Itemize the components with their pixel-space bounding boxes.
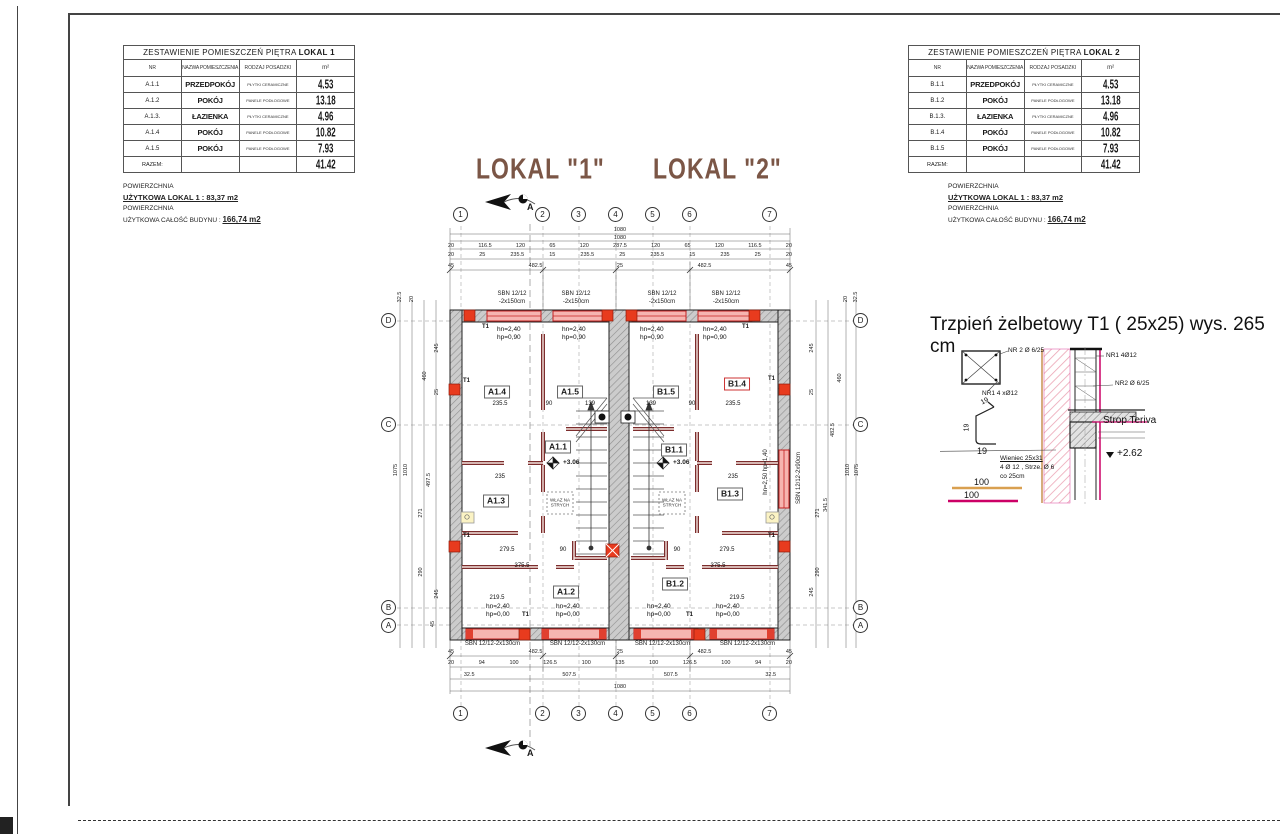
grid-bubble-row-D-left: D — [381, 313, 396, 328]
grid-bubble-col-3-bottom: 3 — [571, 706, 586, 721]
section-marker-top — [483, 190, 543, 218]
window-label-sbn: SBN 12/12-2x150cm — [497, 291, 526, 307]
dim-left: 497.5 — [426, 473, 432, 487]
window-annotation-right: hn=2,50 hp=1,40 — [763, 449, 769, 494]
dim-left: 20 — [409, 296, 415, 302]
grid-bubble-col-6-top: 6 — [682, 207, 697, 222]
dim-left: 1075 — [393, 464, 399, 476]
window-annotation: hn=2,40 hp=0,00 — [556, 603, 580, 619]
plan-dim: 235 — [728, 474, 738, 480]
room-label-b12: B1.2 — [662, 578, 688, 591]
dim-left: 1010 — [403, 464, 409, 476]
table-row: A.1.4 POKÓJ PANELE PODŁOGOWE 10.82 — [124, 125, 355, 141]
grid-bubble-col-7-top: 7 — [762, 207, 777, 222]
detail-label-wieniec-3: co 25cm — [1000, 473, 1025, 480]
dim-left: 290 — [418, 567, 424, 576]
grid-bubble-row-B-right: B — [853, 600, 868, 615]
grid-bubble-col-2-bottom: 2 — [535, 706, 550, 721]
table-row: B.1.5 POKÓJ PANELE PODŁOGOWE 7.93 — [909, 141, 1140, 157]
grid-bubble-col-4-top: 4 — [608, 207, 623, 222]
dim-right: 25 — [809, 389, 815, 395]
detail-label-wieniec-1: Wieniec 25x31 — [1000, 455, 1043, 462]
drawing-frame-top — [68, 13, 1280, 15]
plan-dim: 375.5 — [514, 563, 529, 569]
column-tag-t1: T1 — [768, 376, 775, 382]
detail-scale-100-orange: 100 — [974, 477, 989, 487]
dim-left: 25 — [434, 389, 440, 395]
dim-row-top-3: 20116.512065120287.512065120116.520 — [448, 243, 792, 249]
dim-row-bottom-1: 45482.525482.545 — [448, 649, 792, 655]
window-label-right: SBN 12/12-2x90cm — [796, 452, 802, 504]
grid-bubble-row-C-left: C — [381, 417, 396, 432]
column-tag-t1: T1 — [463, 533, 470, 539]
dim-right: 245 — [809, 587, 815, 596]
detail-level-value: +2.62 — [1117, 448, 1142, 459]
drawing-sheet: ZESTAWIENIE POMIESZCZEŃ PIĘTRA LOKAL 1 N… — [0, 0, 1280, 834]
room-label-a11: A1.1 — [545, 441, 571, 454]
window-annotation: hn=2,40 hp=0,00 — [647, 603, 671, 619]
plan-dim: 139 — [646, 401, 656, 407]
dim-right: 1075 — [854, 464, 860, 476]
table-title: ZESTAWIENIE POMIESZCZEŃ PIĘTRA LOKAL 1 — [124, 46, 355, 60]
floor-plan-graphic — [380, 220, 880, 780]
table-row: A.1.3. ŁAZIENKA PŁYTKI CERAMICZNE 4.96 — [124, 109, 355, 125]
dim-left: 245 — [434, 589, 440, 598]
room-label-a12: A1.2 — [553, 586, 579, 599]
window-label-sbn: SBN 12/12-2x150cm — [711, 291, 740, 307]
unit-title-lokal-1: LOKAL "1" — [476, 152, 605, 186]
plan-dim: 90 — [560, 547, 567, 553]
note-line: POWIERZCHNIA — [123, 204, 261, 214]
column-tag-t1: T1 — [768, 533, 775, 539]
dim-right: 32.5 — [853, 292, 859, 303]
dim-left: 45 — [430, 621, 436, 627]
plan-dim: 90 — [674, 547, 681, 553]
col-header-name: NAZWA POMIESZCZENIA — [181, 60, 239, 77]
grid-bubble-row-B-left: B — [381, 600, 396, 615]
dim-right: 482.5 — [830, 423, 836, 437]
note-line: UŻYTKOWA CAŁOŚĆ BUDYNU : 166,74 m2 — [123, 214, 261, 226]
grid-bubble-col-2-top: 2 — [535, 207, 550, 222]
window-annotation: hn=2,40 hp=0,90 — [640, 326, 664, 342]
total-area: 41.42 — [1082, 157, 1140, 173]
grid-bubble-row-C-right: C — [853, 417, 868, 432]
detail-label-wieniec-2: 4 Ø 12 , Strze. Ø 6 — [1000, 464, 1054, 471]
grid-bubble-col-1-bottom: 1 — [453, 706, 468, 721]
grid-bubble-col-5-top: 5 — [645, 207, 660, 222]
dim-row-bottom-total: 1080 — [450, 684, 790, 690]
sheet-edge-left — [17, 6, 18, 834]
table-row: B.1.4 POKÓJ PANELE PODŁOGOWE 10.82 — [909, 125, 1140, 141]
room-label-a14: A1.4 — [484, 386, 510, 399]
plan-dim: 90 — [689, 401, 696, 407]
dim-right: 245 — [809, 343, 815, 352]
note-line: POWIERZCHNIA — [948, 182, 1086, 192]
plan-dim: 139 — [585, 401, 595, 407]
grid-bubble-row-A-right: A — [853, 618, 868, 633]
room-label-b14: B1.4 — [724, 378, 750, 391]
plan-dim: 219.5 — [489, 595, 504, 601]
level-marker-text: +3.06 — [673, 459, 689, 466]
table-row: A.1.2 POKÓJ PANELE PODŁOGOWE 13.18 — [124, 93, 355, 109]
detail-label-bar-main: NR1 4 xØ12 — [982, 390, 1018, 397]
dim-right: 20 — [843, 296, 849, 302]
drawing-frame-bottom-dashed — [78, 820, 1280, 821]
grid-bubble-col-7-bottom: 7 — [762, 706, 777, 721]
grid-bubble-col-5-bottom: 5 — [645, 706, 660, 721]
grid-bubble-row-A-left: A — [381, 618, 396, 633]
note-line: UŻYTKOWA LOKAL 1 : 83,37 m2 — [123, 192, 261, 204]
column-tag-t1: T1 — [686, 612, 693, 618]
unit-title-lokal-2: LOKAL "2" — [653, 152, 782, 186]
window-annotation: hn=2,40 hp=0,90 — [497, 326, 521, 342]
note-line: UŻYTKOWA LOKAL 1 : 83,37 m2 — [948, 192, 1086, 204]
grid-bubble-row-D-right: D — [853, 313, 868, 328]
room-label-b11: B1.1 — [661, 444, 687, 457]
room-table-lokal-1: ZESTAWIENIE POMIESZCZEŃ PIĘTRA LOKAL 1 N… — [123, 45, 355, 173]
dim-row-top-total: 1080 — [450, 227, 790, 233]
table-row: B.1.2 POKÓJ PANELE PODŁOGOWE 13.18 — [909, 93, 1140, 109]
dim-row-top-5: 45482.525482.545 — [448, 263, 792, 269]
column-tag-t1: T1 — [742, 324, 749, 330]
drawing-frame-left — [68, 13, 70, 806]
detail-graphic — [940, 345, 1270, 515]
area-note-right: POWIERZCHNIA UŻYTKOWA LOKAL 1 : 83,37 m2… — [948, 182, 1086, 226]
grid-bubble-col-4-bottom: 4 — [608, 706, 623, 721]
column-tag-t1: T1 — [482, 324, 489, 330]
dim-left: 460 — [422, 371, 428, 380]
table-row: A.1.5 POKÓJ PANELE PODŁOGOWE 7.93 — [124, 141, 355, 157]
detail-stirrup-dim: 19 — [977, 446, 987, 456]
column-tag-t1: T1 — [522, 612, 529, 618]
attic-hatch-label: WŁAZ NA STRYCH — [662, 498, 682, 509]
plan-dim: 235 — [495, 474, 505, 480]
table-row: A.1.1 PRZEDPOKÓJ PŁYTKI CERAMICZNE 4.53 — [124, 77, 355, 93]
grid-bubble-col-6-bottom: 6 — [682, 706, 697, 721]
window-label-sbn: SBN 12/12-2x150cm — [647, 291, 676, 307]
plan-dim: 219.5 — [729, 595, 744, 601]
grid-bubble-col-1-top: 1 — [453, 207, 468, 222]
plan-dim: 235.5 — [725, 401, 740, 407]
column-tag-t1: T1 — [463, 378, 470, 384]
dim-left: 245 — [434, 343, 440, 352]
window-label-sbn: SBN 12/12-2x150cm — [561, 291, 590, 307]
col-header-name: NAZWA POMIESZCZENIA — [966, 60, 1024, 77]
note-line: POWIERZCHNIA — [123, 182, 261, 192]
room-label-b13: B1.3 — [717, 488, 743, 501]
table-title: ZESTAWIENIE POMIESZCZEŃ PIĘTRA LOKAL 2 — [909, 46, 1140, 60]
col-header-area: m² — [297, 60, 355, 77]
plan-dim: 279.5 — [719, 547, 734, 553]
dim-row-bottom-2: 2094100126.5100135100126.51009420 — [448, 660, 792, 666]
area-note-left: POWIERZCHNIA UŻYTKOWA LOKAL 1 : 83,37 m2… — [123, 182, 261, 226]
grid-bubble-col-3-top: 3 — [571, 207, 586, 222]
room-label-a15: A1.5 — [557, 386, 583, 399]
note-line: POWIERZCHNIA — [948, 204, 1086, 214]
total-label: RAZEM: — [124, 157, 182, 173]
col-header-area: m² — [1082, 60, 1140, 77]
detail-label-bar-top: NR 2 Ø 6/25 — [1008, 347, 1044, 354]
room-label-b15: B1.5 — [653, 386, 679, 399]
dim-right: 341.5 — [823, 498, 829, 512]
window-annotation: hn=2,40 hp=0,00 — [486, 603, 510, 619]
plan-dim: 279.5 — [499, 547, 514, 553]
note-line: UŻYTKOWA CAŁOŚĆ BUDYNU : 166,74 m2 — [948, 214, 1086, 226]
col-header-floor: RODZAJ POSADZKI — [239, 60, 297, 77]
section-label-top: A — [527, 202, 534, 212]
total-area: 41.42 — [297, 157, 355, 173]
dim-right: 1010 — [845, 464, 851, 476]
detail-scale-100-magenta: 100 — [964, 490, 979, 500]
corner-mark — [0, 817, 13, 834]
table-row: B.1.1 PRZEDPOKÓJ PŁYTKI CERAMICZNE 4.53 — [909, 77, 1140, 93]
room-table-lokal-2: ZESTAWIENIE POMIESZCZEŃ PIĘTRA LOKAL 2 N… — [908, 45, 1140, 173]
plan-dim: 235.5 — [492, 401, 507, 407]
detail-label-strop-teriva: Strop Teriva — [1103, 415, 1156, 426]
total-label: RAZEM: — [909, 157, 967, 173]
plan-dim: 90 — [546, 401, 553, 407]
detail-label-nr1: NR1 4Ø12 — [1106, 352, 1137, 359]
dim-left: 32.5 — [397, 292, 403, 303]
attic-hatch-label: WŁAZ NA STRYCH — [550, 498, 570, 509]
window-annotation: hn=2,40 hp=0,90 — [703, 326, 727, 342]
window-annotation: hn=2,40 hp=0,00 — [716, 603, 740, 619]
col-header-nr: NR — [909, 60, 967, 77]
table-row: B.1.3. ŁAZIENKA PŁYTKI CERAMICZNE 4.96 — [909, 109, 1140, 125]
dim-left: 271 — [418, 508, 424, 517]
col-header-floor: RODZAJ POSADZKI — [1024, 60, 1082, 77]
dim-right: 271 — [815, 508, 821, 517]
dim-right: 460 — [837, 373, 843, 382]
dim-row-top-4: 2025235.515235.525235.5152352520 — [448, 252, 792, 258]
window-annotation: hn=2,40 hp=0,90 — [562, 326, 586, 342]
window-labels-bottom: SBN 12/12-2x130cmSBN 12/12-2x130cmSBN 12… — [450, 641, 790, 647]
dim-row-top-total2: 1080 — [450, 235, 790, 241]
plan-dim: 375.5 — [710, 563, 725, 569]
dim-row-bottom-3: 32.5507.5507.532.5 — [420, 672, 820, 678]
detail-stirrup-dim: 19 — [963, 424, 970, 432]
detail-label-nr2: NR2 Ø 6/25 — [1115, 380, 1149, 387]
dim-right: 290 — [815, 567, 821, 576]
col-header-nr: NR — [124, 60, 182, 77]
level-marker-text: +3.06 — [563, 459, 579, 466]
room-label-a13: A1.3 — [483, 495, 509, 508]
